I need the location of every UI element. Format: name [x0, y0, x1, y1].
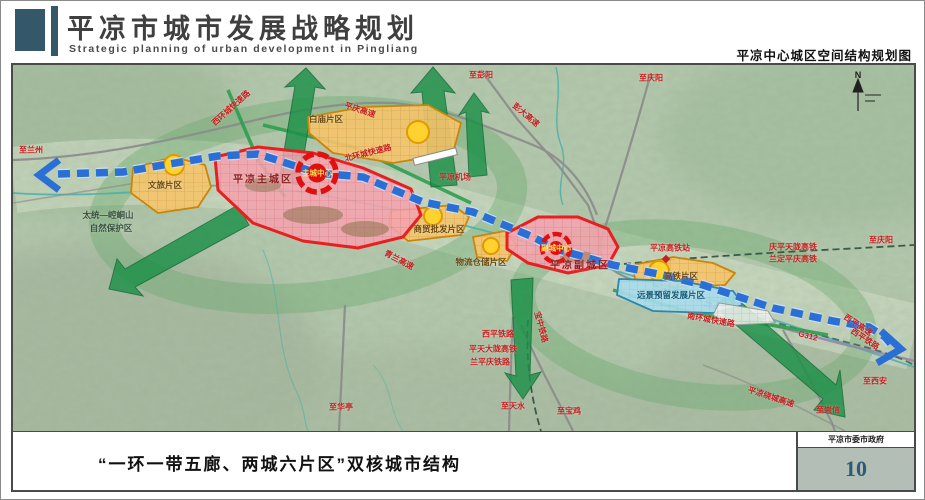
page-footer: “一环一带五廊、两城六片区”双核城市结构 平凉市委市政府 10: [11, 432, 916, 492]
organization-box: 平凉市委市政府 10: [796, 432, 914, 490]
main-core-dot: [308, 164, 327, 183]
page-subtitle-en: Strategic planning of urban development …: [69, 43, 419, 55]
page-title: 平凉市城市发展战略规划: [67, 7, 419, 46]
map-canvas: [13, 65, 914, 431]
page-number: 10: [798, 448, 914, 490]
header-accent-bar: [51, 6, 58, 56]
header-accent-square: [15, 9, 45, 51]
planning-map: 至兰州至彭阳至庆阳至庆阳庆平天陇高铁兰定平庆高铁平凉高铁站平凉机场彭大高速平庆高…: [11, 63, 916, 433]
sub-core-dot: [549, 241, 563, 255]
page-header: 平凉市城市发展战略规划 Strategic planning of urban …: [1, 1, 925, 63]
structure-caption: “一环一带五廊、两城六片区”双核城市结构: [98, 450, 461, 475]
planning-document-page: 平凉市城市发展战略规划 Strategic planning of urban …: [0, 0, 925, 500]
map-sheet-title: 平凉中心城区空间结构规划图: [736, 45, 912, 64]
organization-name: 平凉市委市政府: [798, 432, 914, 448]
